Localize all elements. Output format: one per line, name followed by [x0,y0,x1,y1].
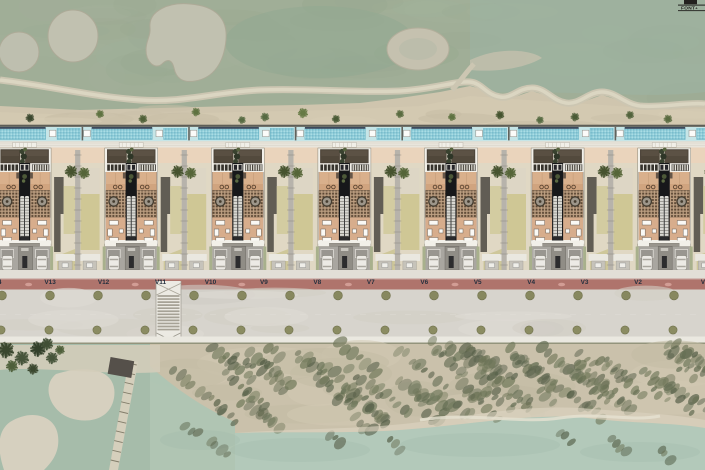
svg-text:V2: V2 [634,279,642,286]
svg-text:V8: V8 [313,279,321,286]
svg-text:V: V [701,279,705,286]
svg-text:V5: V5 [474,279,482,286]
svg-text:V7: V7 [367,279,375,286]
svg-text:V4: V4 [527,279,535,286]
svg-text:V11: V11 [155,279,166,286]
svg-text:V3: V3 [581,279,589,286]
svg-text:V13: V13 [44,279,56,286]
svg-text:V6: V6 [420,279,428,286]
svg-text:V12: V12 [98,279,110,286]
svg-text:V9: V9 [260,279,268,286]
